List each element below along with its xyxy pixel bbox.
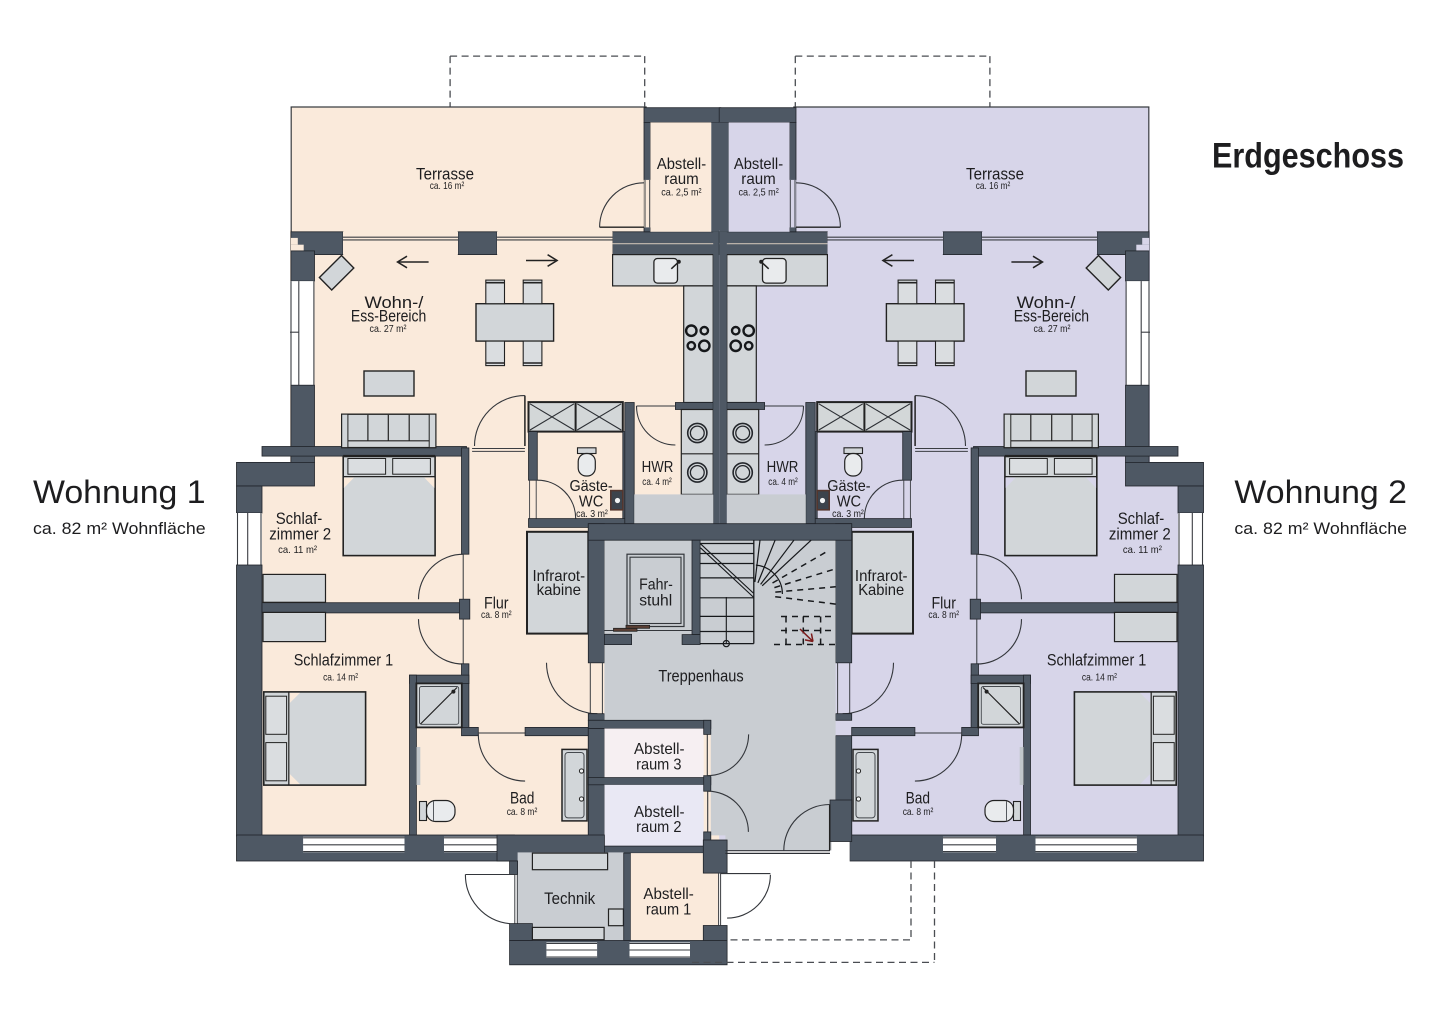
svg-text:ca. 8 m²: ca. 8 m² (507, 806, 538, 818)
svg-text:ca. 3 m²: ca. 3 m² (576, 508, 608, 520)
svg-text:Treppenhaus: Treppenhaus (658, 667, 743, 686)
svg-text:Gäste-: Gäste- (569, 478, 612, 495)
svg-text:ca. 14 m²: ca. 14 m² (1082, 671, 1117, 683)
svg-text:ca. 2,5 m²: ca. 2,5 m² (661, 187, 702, 199)
svg-text:ca. 82 m² Wohnfläche: ca. 82 m² Wohnfläche (1234, 520, 1407, 538)
svg-text:Technik: Technik (544, 889, 595, 908)
svg-text:Bad: Bad (906, 788, 930, 807)
svg-text:ca. 27 m²: ca. 27 m² (1034, 323, 1071, 335)
svg-text:ca. 11 m²: ca. 11 m² (278, 544, 317, 556)
svg-text:ca. 2,5 m²: ca. 2,5 m² (738, 187, 779, 199)
svg-text:ca. 14 m²: ca. 14 m² (323, 671, 358, 683)
svg-text:ca. 8 m²: ca. 8 m² (928, 609, 959, 621)
svg-text:Erdgeschoss: Erdgeschoss (1212, 137, 1404, 176)
svg-text:raum: raum (664, 171, 698, 188)
svg-text:stuhl: stuhl (639, 592, 672, 609)
svg-text:Bad: Bad (510, 788, 534, 807)
svg-text:kabine: kabine (537, 582, 581, 599)
svg-text:HWR: HWR (767, 459, 799, 476)
svg-text:ca. 27 m²: ca. 27 m² (370, 323, 407, 335)
svg-text:Schlafzimmer 1: Schlafzimmer 1 (1047, 650, 1146, 669)
svg-text:ca. 8 m²: ca. 8 m² (481, 609, 512, 621)
svg-text:ca. 4 m²: ca. 4 m² (642, 476, 672, 488)
svg-text:Kabine: Kabine (858, 582, 904, 599)
svg-text:raum 1: raum 1 (646, 902, 691, 919)
svg-text:raum 2: raum 2 (636, 819, 681, 836)
svg-text:HWR: HWR (642, 459, 674, 476)
svg-text:ca. 4 m²: ca. 4 m² (768, 476, 798, 488)
svg-text:zimmer 2: zimmer 2 (1109, 524, 1171, 543)
svg-text:zimmer 2: zimmer 2 (269, 524, 331, 543)
svg-text:raum: raum (741, 171, 775, 188)
svg-text:Wohnung 1: Wohnung 1 (33, 474, 206, 510)
svg-text:ca. 3 m²: ca. 3 m² (832, 508, 864, 520)
svg-text:Gäste-: Gäste- (827, 478, 870, 495)
svg-text:Schlafzimmer 1: Schlafzimmer 1 (294, 650, 393, 669)
svg-text:ca. 11 m²: ca. 11 m² (1123, 544, 1162, 556)
svg-text:ca. 16 m²: ca. 16 m² (976, 180, 1011, 192)
svg-text:ca. 8 m²: ca. 8 m² (903, 806, 934, 818)
svg-text:Wohnung 2: Wohnung 2 (1234, 474, 1407, 510)
svg-text:raum 3: raum 3 (636, 756, 681, 773)
svg-text:Fahr-: Fahr- (639, 577, 673, 594)
svg-text:Abstell-: Abstell- (643, 886, 694, 903)
svg-text:ca. 16 m²: ca. 16 m² (430, 180, 465, 192)
svg-text:ca. 82 m² Wohnfläche: ca. 82 m² Wohnfläche (33, 520, 206, 538)
